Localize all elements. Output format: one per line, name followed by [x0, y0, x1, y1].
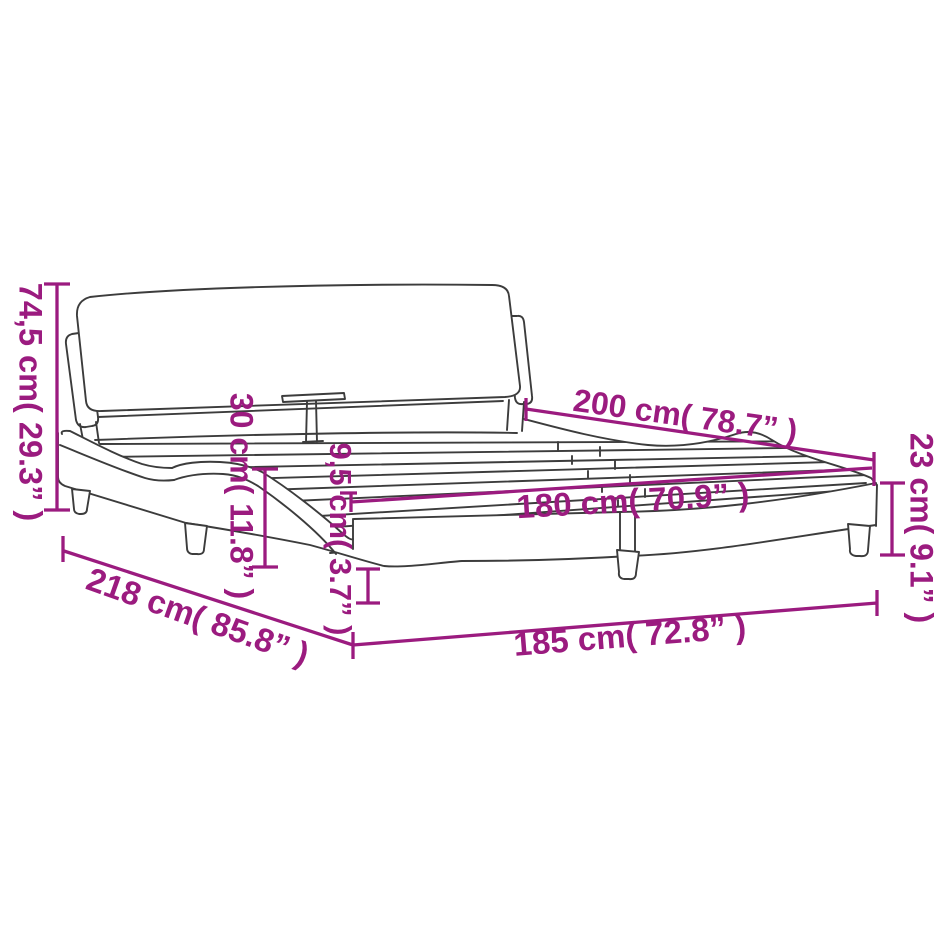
svg-text:9,5 cm( 3.7” ): 9,5 cm( 3.7” )	[323, 443, 358, 636]
svg-text:30 cm( 11.8” ): 30 cm( 11.8” )	[224, 393, 260, 599]
svg-text:23 cm( 9.1” ): 23 cm( 9.1” )	[904, 433, 940, 623]
svg-text:74,5 cm( 29.3” ): 74,5 cm( 29.3” )	[12, 283, 48, 521]
